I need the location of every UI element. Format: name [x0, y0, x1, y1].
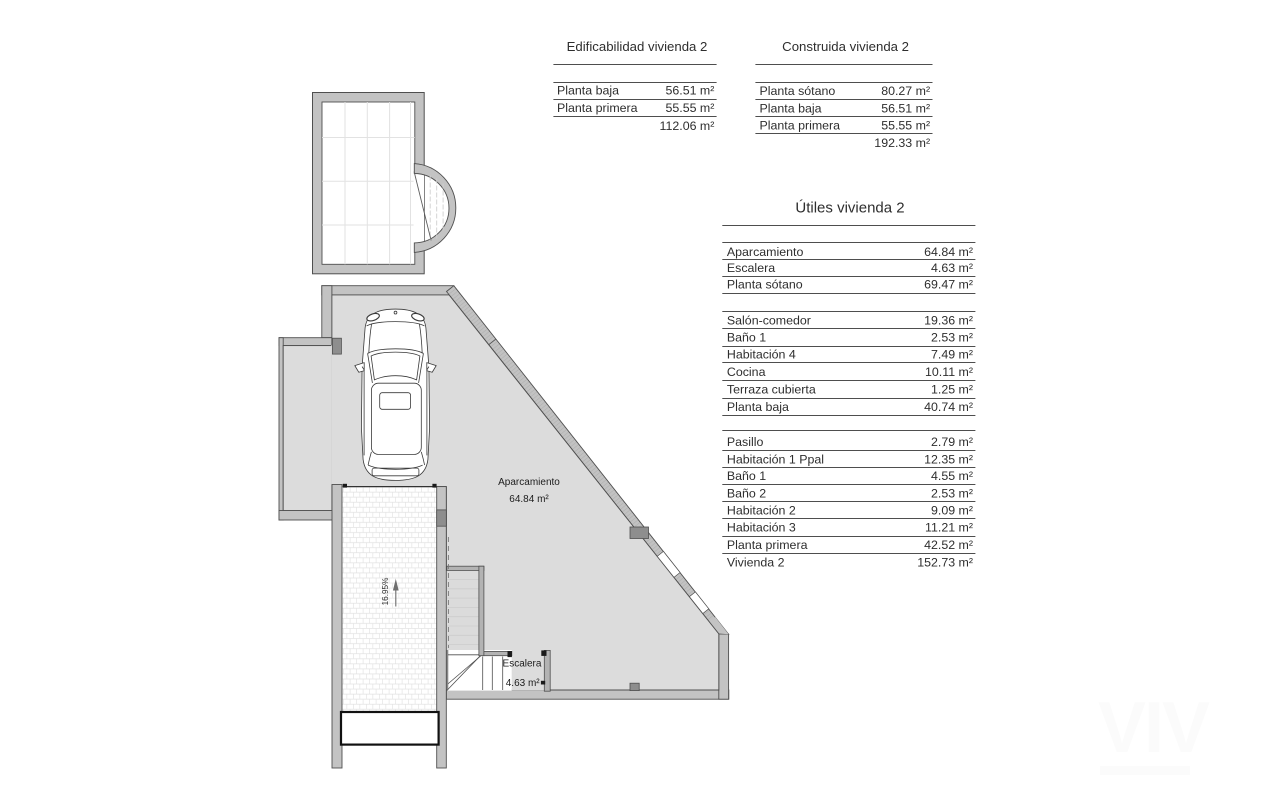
svg-text:112.06 m²: 112.06 m²: [660, 119, 715, 133]
svg-text:Planta primera: Planta primera: [727, 538, 808, 552]
svg-text:55.55 m²: 55.55 m²: [665, 101, 714, 115]
svg-text:Vivienda 2: Vivienda 2: [727, 556, 785, 570]
svg-text:Escalera: Escalera: [503, 659, 542, 670]
svg-text:4.55 m²: 4.55 m²: [931, 469, 973, 483]
svg-text:Salón-comedor: Salón-comedor: [727, 313, 811, 327]
svg-text:64.84 m²: 64.84 m²: [509, 494, 549, 505]
svg-text:Aparcamiento: Aparcamiento: [727, 245, 804, 259]
svg-text:Planta primera: Planta primera: [557, 101, 638, 115]
svg-text:152.73 m²: 152.73 m²: [917, 556, 973, 570]
svg-text:16.95%: 16.95%: [381, 578, 390, 606]
svg-text:Baño 2: Baño 2: [727, 487, 766, 501]
svg-text:Habitación 4: Habitación 4: [727, 347, 796, 361]
svg-text:12.35 m²: 12.35 m²: [924, 453, 973, 467]
svg-text:Planta baja: Planta baja: [760, 101, 822, 115]
svg-text:Útiles vivienda 2: Útiles vivienda 2: [795, 200, 904, 217]
svg-text:56.51 m²: 56.51 m²: [881, 101, 930, 115]
svg-text:VIV: VIV: [1098, 688, 1210, 768]
svg-text:4.63 m²: 4.63 m²: [931, 261, 973, 275]
svg-text:Pasillo: Pasillo: [727, 435, 764, 449]
svg-text:2.53 m²: 2.53 m²: [931, 487, 973, 501]
svg-text:Baño 1: Baño 1: [727, 469, 766, 483]
svg-text:7.49 m²: 7.49 m²: [931, 347, 973, 361]
svg-text:Habitación 2: Habitación 2: [727, 504, 796, 518]
svg-text:2.79 m²: 2.79 m²: [931, 435, 973, 449]
svg-text:19.36 m²: 19.36 m²: [924, 313, 973, 327]
svg-text:55.55 m²: 55.55 m²: [881, 118, 930, 132]
svg-text:Planta primera: Planta primera: [760, 118, 841, 132]
svg-text:Planta baja: Planta baja: [727, 400, 789, 414]
svg-text:56.51 m²: 56.51 m²: [665, 83, 714, 97]
svg-text:Planta sótano: Planta sótano: [760, 84, 836, 98]
svg-text:11.21 m²: 11.21 m²: [925, 521, 973, 535]
svg-text:Aparcamiento: Aparcamiento: [498, 477, 560, 488]
svg-text:Escalera: Escalera: [727, 261, 775, 275]
svg-text:40.74 m²: 40.74 m²: [924, 400, 973, 414]
svg-text:80.27 m²: 80.27 m²: [881, 84, 930, 98]
svg-text:1.25 m²: 1.25 m²: [931, 382, 973, 396]
svg-text:Planta baja: Planta baja: [557, 83, 619, 97]
svg-text:Terraza cubierta: Terraza cubierta: [727, 382, 816, 396]
svg-text:2.53 m²: 2.53 m²: [931, 330, 973, 344]
svg-text:9.09 m²: 9.09 m²: [931, 504, 973, 518]
svg-text:42.52 m²: 42.52 m²: [924, 538, 973, 552]
svg-text:192.33 m²: 192.33 m²: [874, 136, 930, 150]
svg-text:Construida vivienda 2: Construida vivienda 2: [782, 39, 909, 54]
svg-text:Habitación 3: Habitación 3: [727, 521, 796, 535]
svg-text:Cocina: Cocina: [727, 365, 766, 379]
svg-text:Habitación 1 Ppal: Habitación 1 Ppal: [727, 453, 824, 467]
svg-text:Planta sótano: Planta sótano: [727, 278, 803, 292]
svg-text:69.47 m²: 69.47 m²: [924, 278, 973, 292]
svg-text:10.11 m²: 10.11 m²: [925, 365, 973, 379]
svg-text:64.84 m²: 64.84 m²: [924, 245, 973, 259]
svg-text:4.63 m²: 4.63 m²: [506, 678, 541, 689]
svg-text:Baño 1: Baño 1: [727, 330, 766, 344]
svg-text:Edificabilidad vivienda 2: Edificabilidad vivienda 2: [567, 39, 708, 54]
